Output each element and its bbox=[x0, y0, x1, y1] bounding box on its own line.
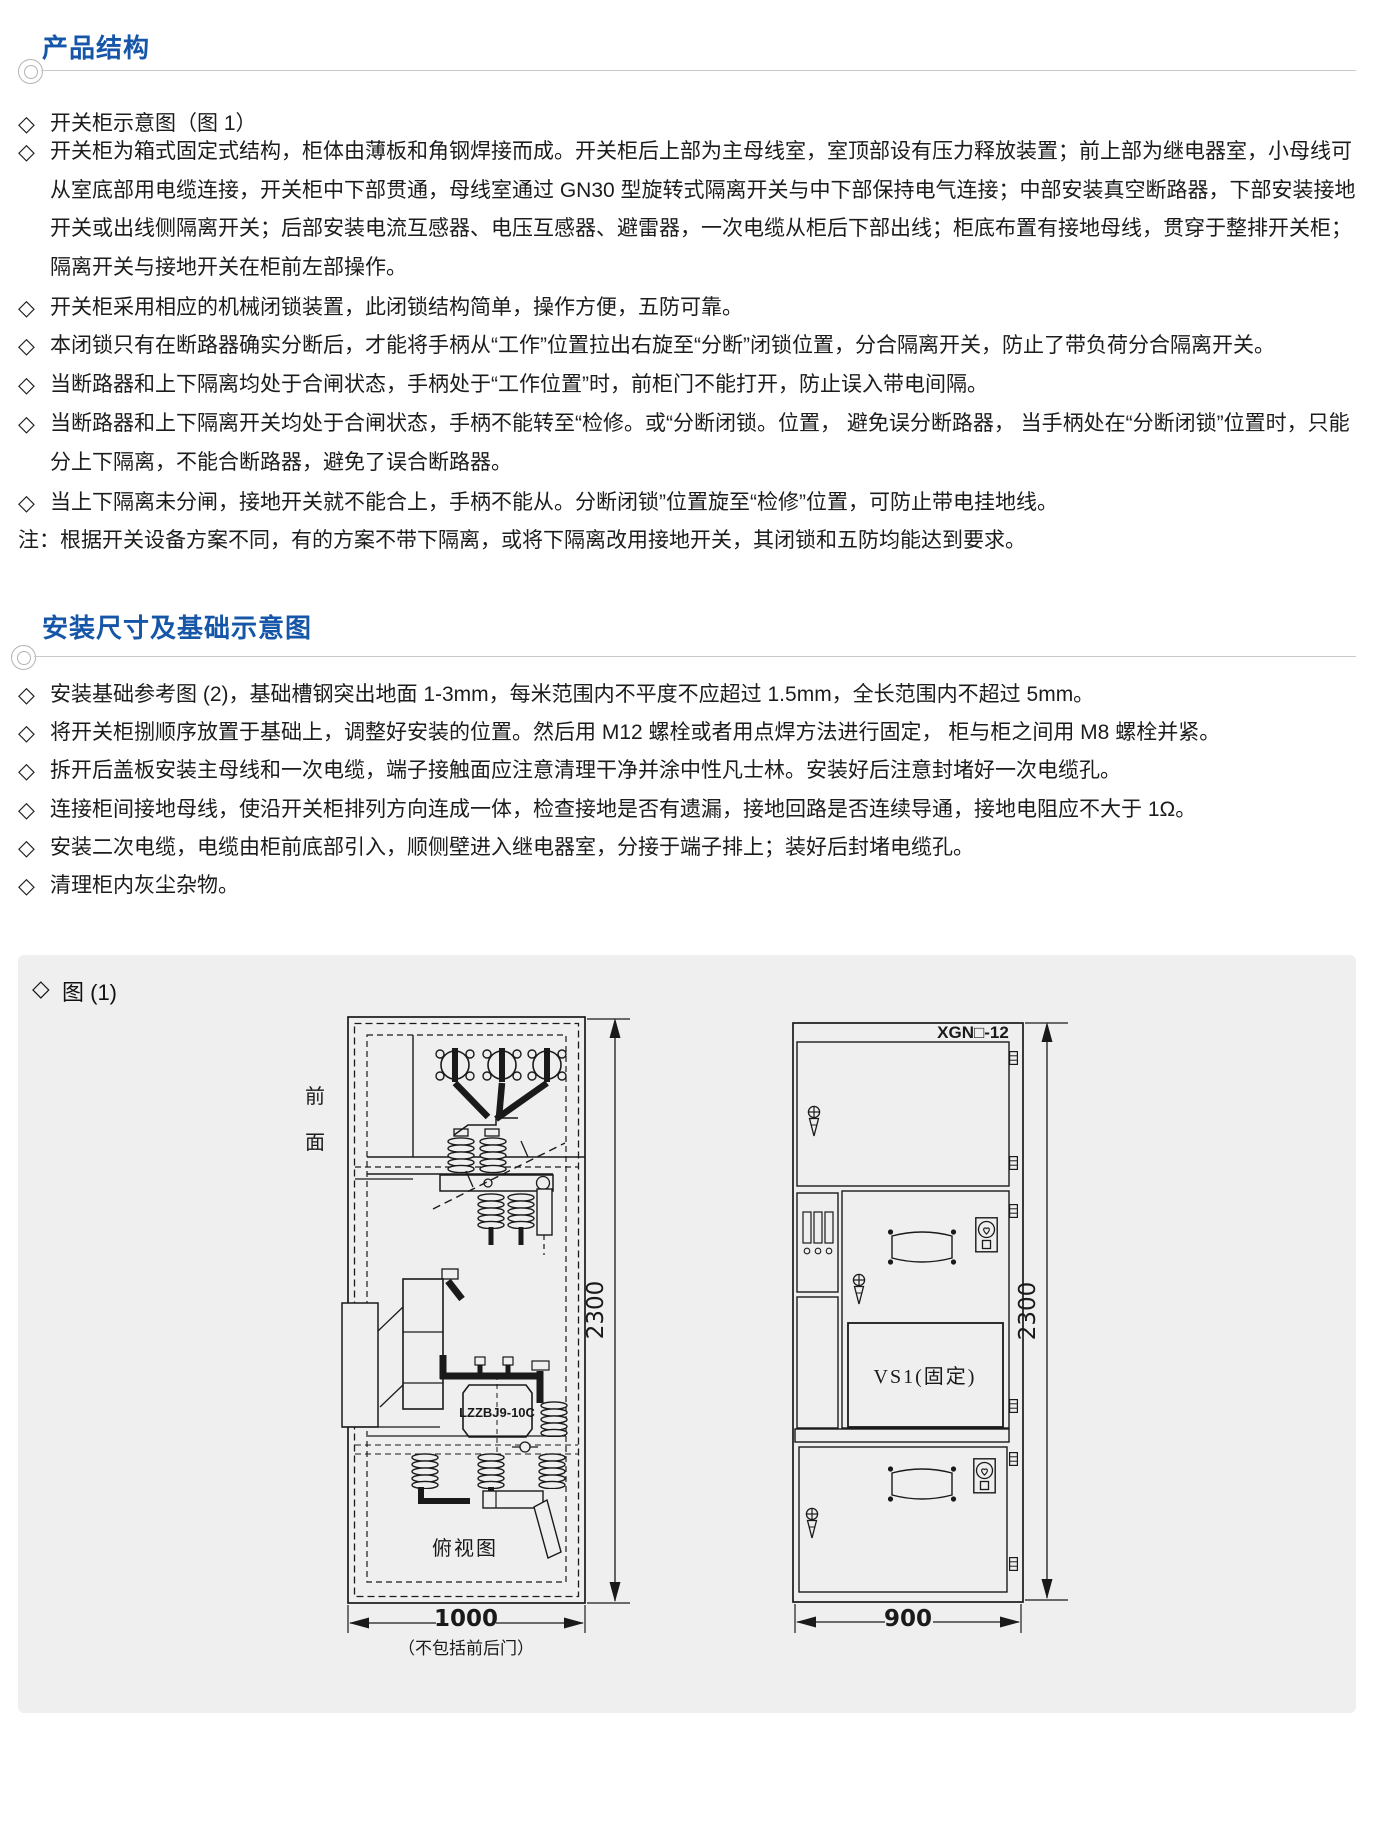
figure-drawing: 前 面 LZZBJ9-10C 俯视图 2300 1000 （不包括前后门） bbox=[18, 955, 1356, 1713]
install-item: ◇ 连接柜间接地母线，使沿开关柜排列方向连成一体，检查接地是否有遗漏，接地回路是… bbox=[18, 791, 1356, 830]
insulator-icon bbox=[448, 1138, 474, 1173]
diamond-bullet-icon: ◇ bbox=[18, 791, 50, 830]
insulator-icon bbox=[508, 1194, 534, 1229]
product-note: 注：根据开关设备方案不同，有的方案不带下隔离，或将下隔离改用接地开关，其闭锁和五… bbox=[18, 522, 1356, 561]
hinge-icon bbox=[1010, 1205, 1018, 1218]
diamond-bullet-icon: ◇ bbox=[18, 366, 50, 405]
insulator-icon bbox=[478, 1454, 504, 1489]
door-handle-icon bbox=[888, 1466, 956, 1501]
product-item: ◇ 开关柜采用相应的机械闭锁装置，此闭锁结构简单，操作方便，五防可靠。 bbox=[18, 289, 1356, 328]
front-view-width-value: 900 bbox=[884, 1606, 932, 1632]
product-item: ◇ 当断路器和上下隔离开关均处于合闸状态，手柄不能转至“检修。或“分断闭锁。位置… bbox=[18, 405, 1356, 482]
door-lock-icon bbox=[976, 1218, 997, 1252]
vent-valve-icon bbox=[808, 1106, 819, 1136]
side-view-width-note: （不包括前后门） bbox=[398, 1639, 534, 1658]
insulator-icon bbox=[541, 1402, 567, 1437]
top-view-label: 俯视图 bbox=[432, 1537, 498, 1560]
model-label: XGN□-12 bbox=[937, 1023, 1009, 1042]
install-item: ◇ 拆开后盖板安装主母线和一次电缆，端子接触面应注意清理干净并涂中性凡士林。安装… bbox=[18, 752, 1356, 791]
install-item: ◇ 安装基础参考图 (2)，基础槽钢突出地面 1-3mm，每米范围内不平度不应超… bbox=[18, 676, 1356, 715]
section-rule bbox=[41, 70, 1356, 71]
section-product-title: 产品结构 bbox=[42, 28, 150, 65]
section-install-title: 安装尺寸及基础示意图 bbox=[42, 608, 312, 645]
diamond-bullet-icon: ◇ bbox=[18, 484, 50, 523]
diamond-bullet-icon: ◇ bbox=[18, 867, 50, 906]
install-item-text: 拆开后盖板安装主母线和一次电缆，端子接触面应注意清理干净并涂中性凡士林。安装好后… bbox=[50, 752, 1356, 791]
diamond-bullet-icon: ◇ bbox=[18, 405, 50, 482]
section-ring-icon bbox=[18, 59, 43, 84]
install-item-text: 清理柜内灰尘杂物。 bbox=[50, 867, 1356, 906]
bushing-icon bbox=[483, 1048, 521, 1082]
insulator-icon bbox=[478, 1194, 504, 1229]
vent-valve-icon bbox=[853, 1274, 864, 1304]
product-item: ◇ 开关柜为箱式固定式结构，柜体由薄板和角钢焊接而成。开关柜后上部为主母线室，室… bbox=[18, 133, 1356, 287]
vent-valve-icon bbox=[806, 1508, 817, 1538]
install-item-text: 将开关柜捌顺序放置于基础上，调整好安装的位置。然后用 M12 螺栓或者用点焊方法… bbox=[50, 714, 1356, 753]
cabinet-front-view bbox=[793, 1023, 1023, 1602]
front-view-height-value: 2300 bbox=[1015, 1282, 1041, 1341]
door-lock-icon bbox=[974, 1459, 995, 1493]
hinge-icon bbox=[1010, 1400, 1018, 1413]
cabinet-side-view bbox=[342, 1017, 585, 1603]
section-rule bbox=[34, 656, 1356, 657]
product-item-text: 当断路器和上下隔离开关均处于合闸状态，手柄不能转至“检修。或“分断闭锁。位置， … bbox=[50, 405, 1356, 482]
diamond-bullet-icon: ◇ bbox=[18, 289, 50, 328]
insulator-icon bbox=[412, 1454, 438, 1489]
hinge-icon bbox=[1010, 1558, 1018, 1571]
hinge-icon bbox=[1010, 1157, 1018, 1170]
diamond-bullet-icon: ◇ bbox=[18, 327, 50, 366]
product-item: ◇ 当断路器和上下隔离均处于合闸状态，手柄处于“工作位置”时，前柜门不能打开，防… bbox=[18, 366, 1356, 405]
front-face-label-top: 前 bbox=[305, 1085, 325, 1108]
diamond-bullet-icon: ◇ bbox=[18, 676, 50, 715]
bushing-icon bbox=[528, 1048, 566, 1082]
insulator-icon bbox=[539, 1454, 565, 1489]
front-face-label-bottom: 面 bbox=[305, 1132, 325, 1154]
diamond-bullet-icon: ◇ bbox=[18, 752, 50, 791]
product-item-text: 开关柜采用相应的机械闭锁装置，此闭锁结构简单，操作方便，五防可靠。 bbox=[50, 289, 1356, 328]
side-view-width-value: 1000 bbox=[434, 1606, 498, 1632]
hinge-icon bbox=[1010, 1052, 1018, 1065]
section-ring-icon bbox=[11, 645, 36, 670]
hinge-icon bbox=[1010, 1453, 1018, 1466]
bushing-icon bbox=[436, 1048, 474, 1082]
diamond-bullet-icon: ◇ bbox=[18, 714, 50, 753]
ct-label: LZZBJ9-10C bbox=[459, 1405, 535, 1420]
install-item: ◇ 安装二次电缆，电缆由柜前底部引入，顺侧壁进入继电器室，分接于端子排上；装好后… bbox=[18, 829, 1356, 868]
door-handle-icon bbox=[888, 1229, 956, 1264]
product-item: ◇ 本闭锁只有在断路器确实分断后，才能将手柄从“工作”位置拉出右旋至“分断”闭锁… bbox=[18, 327, 1356, 366]
diamond-bullet-icon: ◇ bbox=[18, 829, 50, 868]
product-item-text: 当断路器和上下隔离均处于合闸状态，手柄处于“工作位置”时，前柜门不能打开，防止误… bbox=[50, 366, 1356, 405]
side-view-height-value: 2300 bbox=[583, 1281, 609, 1340]
insulator-icon bbox=[480, 1138, 506, 1173]
install-item: ◇ 清理柜内灰尘杂物。 bbox=[18, 867, 1356, 906]
install-item-text: 安装基础参考图 (2)，基础槽钢突出地面 1-3mm，每米范围内不平度不应超过 … bbox=[50, 676, 1356, 715]
install-item-text: 连接柜间接地母线，使沿开关柜排列方向连成一体，检查接地是否有遗漏，接地回路是否连… bbox=[50, 791, 1356, 830]
figure-panel: ◇ 图 (1) bbox=[18, 955, 1356, 1713]
install-item: ◇ 将开关柜捌顺序放置于基础上，调整好安装的位置。然后用 M12 螺栓或者用点焊… bbox=[18, 714, 1356, 753]
product-item: ◇ 当上下隔离未分闸，接地开关就不能合上，手柄不能从。分断闭锁”位置旋至“检修”… bbox=[18, 484, 1356, 523]
diamond-bullet-icon: ◇ bbox=[18, 133, 50, 287]
install-item-text: 安装二次电缆，电缆由柜前底部引入，顺侧壁进入继电器室，分接于端子排上；装好后封堵… bbox=[50, 829, 1356, 868]
breaker-label: VS1(固定) bbox=[874, 1365, 977, 1388]
product-item-text: 开关柜为箱式固定式结构，柜体由薄板和角钢焊接而成。开关柜后上部为主母线室，室顶部… bbox=[50, 133, 1356, 287]
product-item-text: 本闭锁只有在断路器确实分断后，才能将手柄从“工作”位置拉出右旋至“分断”闭锁位置… bbox=[50, 327, 1356, 366]
product-item-text: 当上下隔离未分闸，接地开关就不能合上，手柄不能从。分断闭锁”位置旋至“检修”位置… bbox=[50, 484, 1356, 523]
